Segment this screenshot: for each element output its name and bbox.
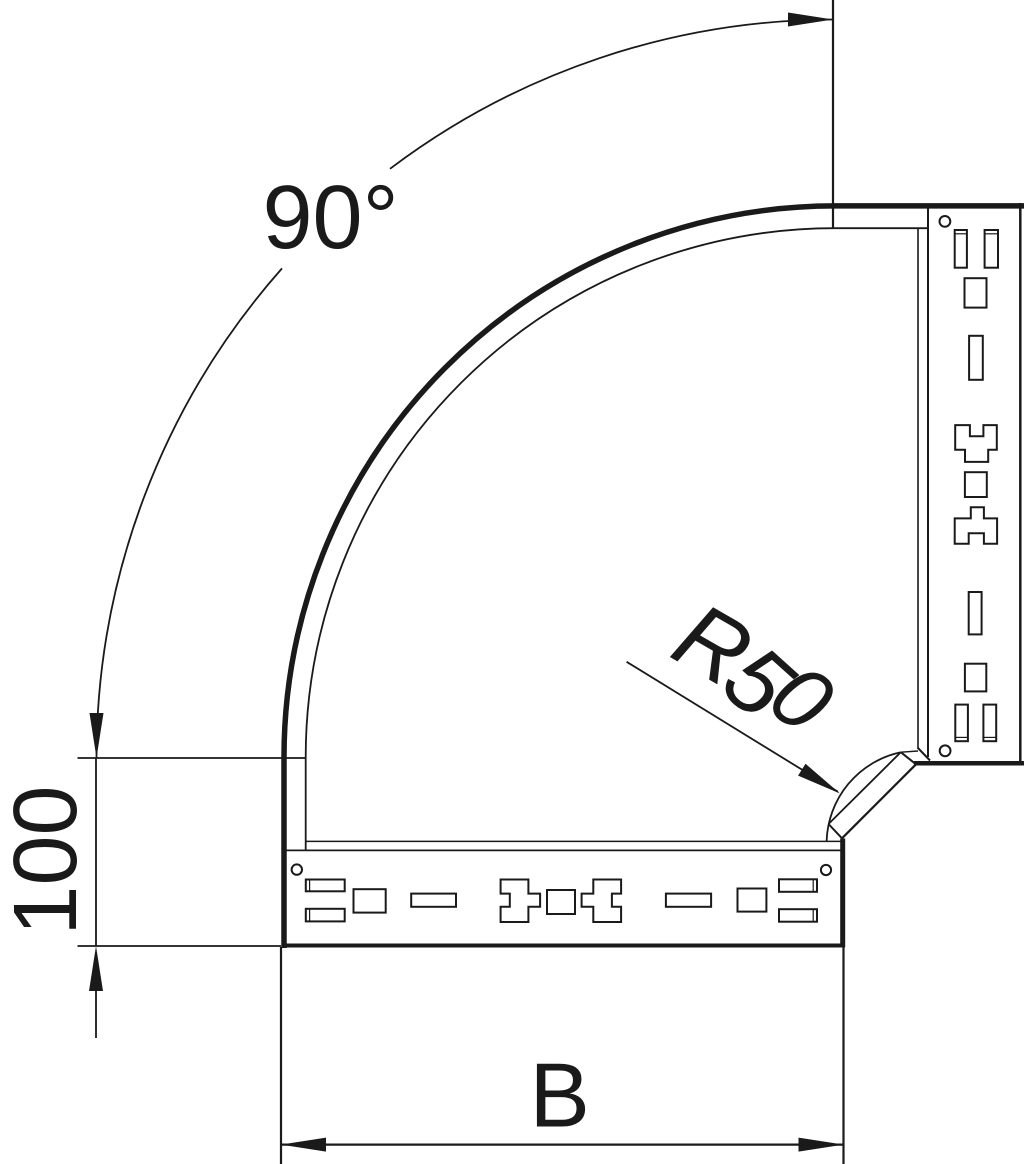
- svg-text:90°: 90°: [263, 168, 399, 268]
- svg-text:B: B: [530, 1046, 590, 1147]
- svg-text:100: 100: [0, 785, 96, 935]
